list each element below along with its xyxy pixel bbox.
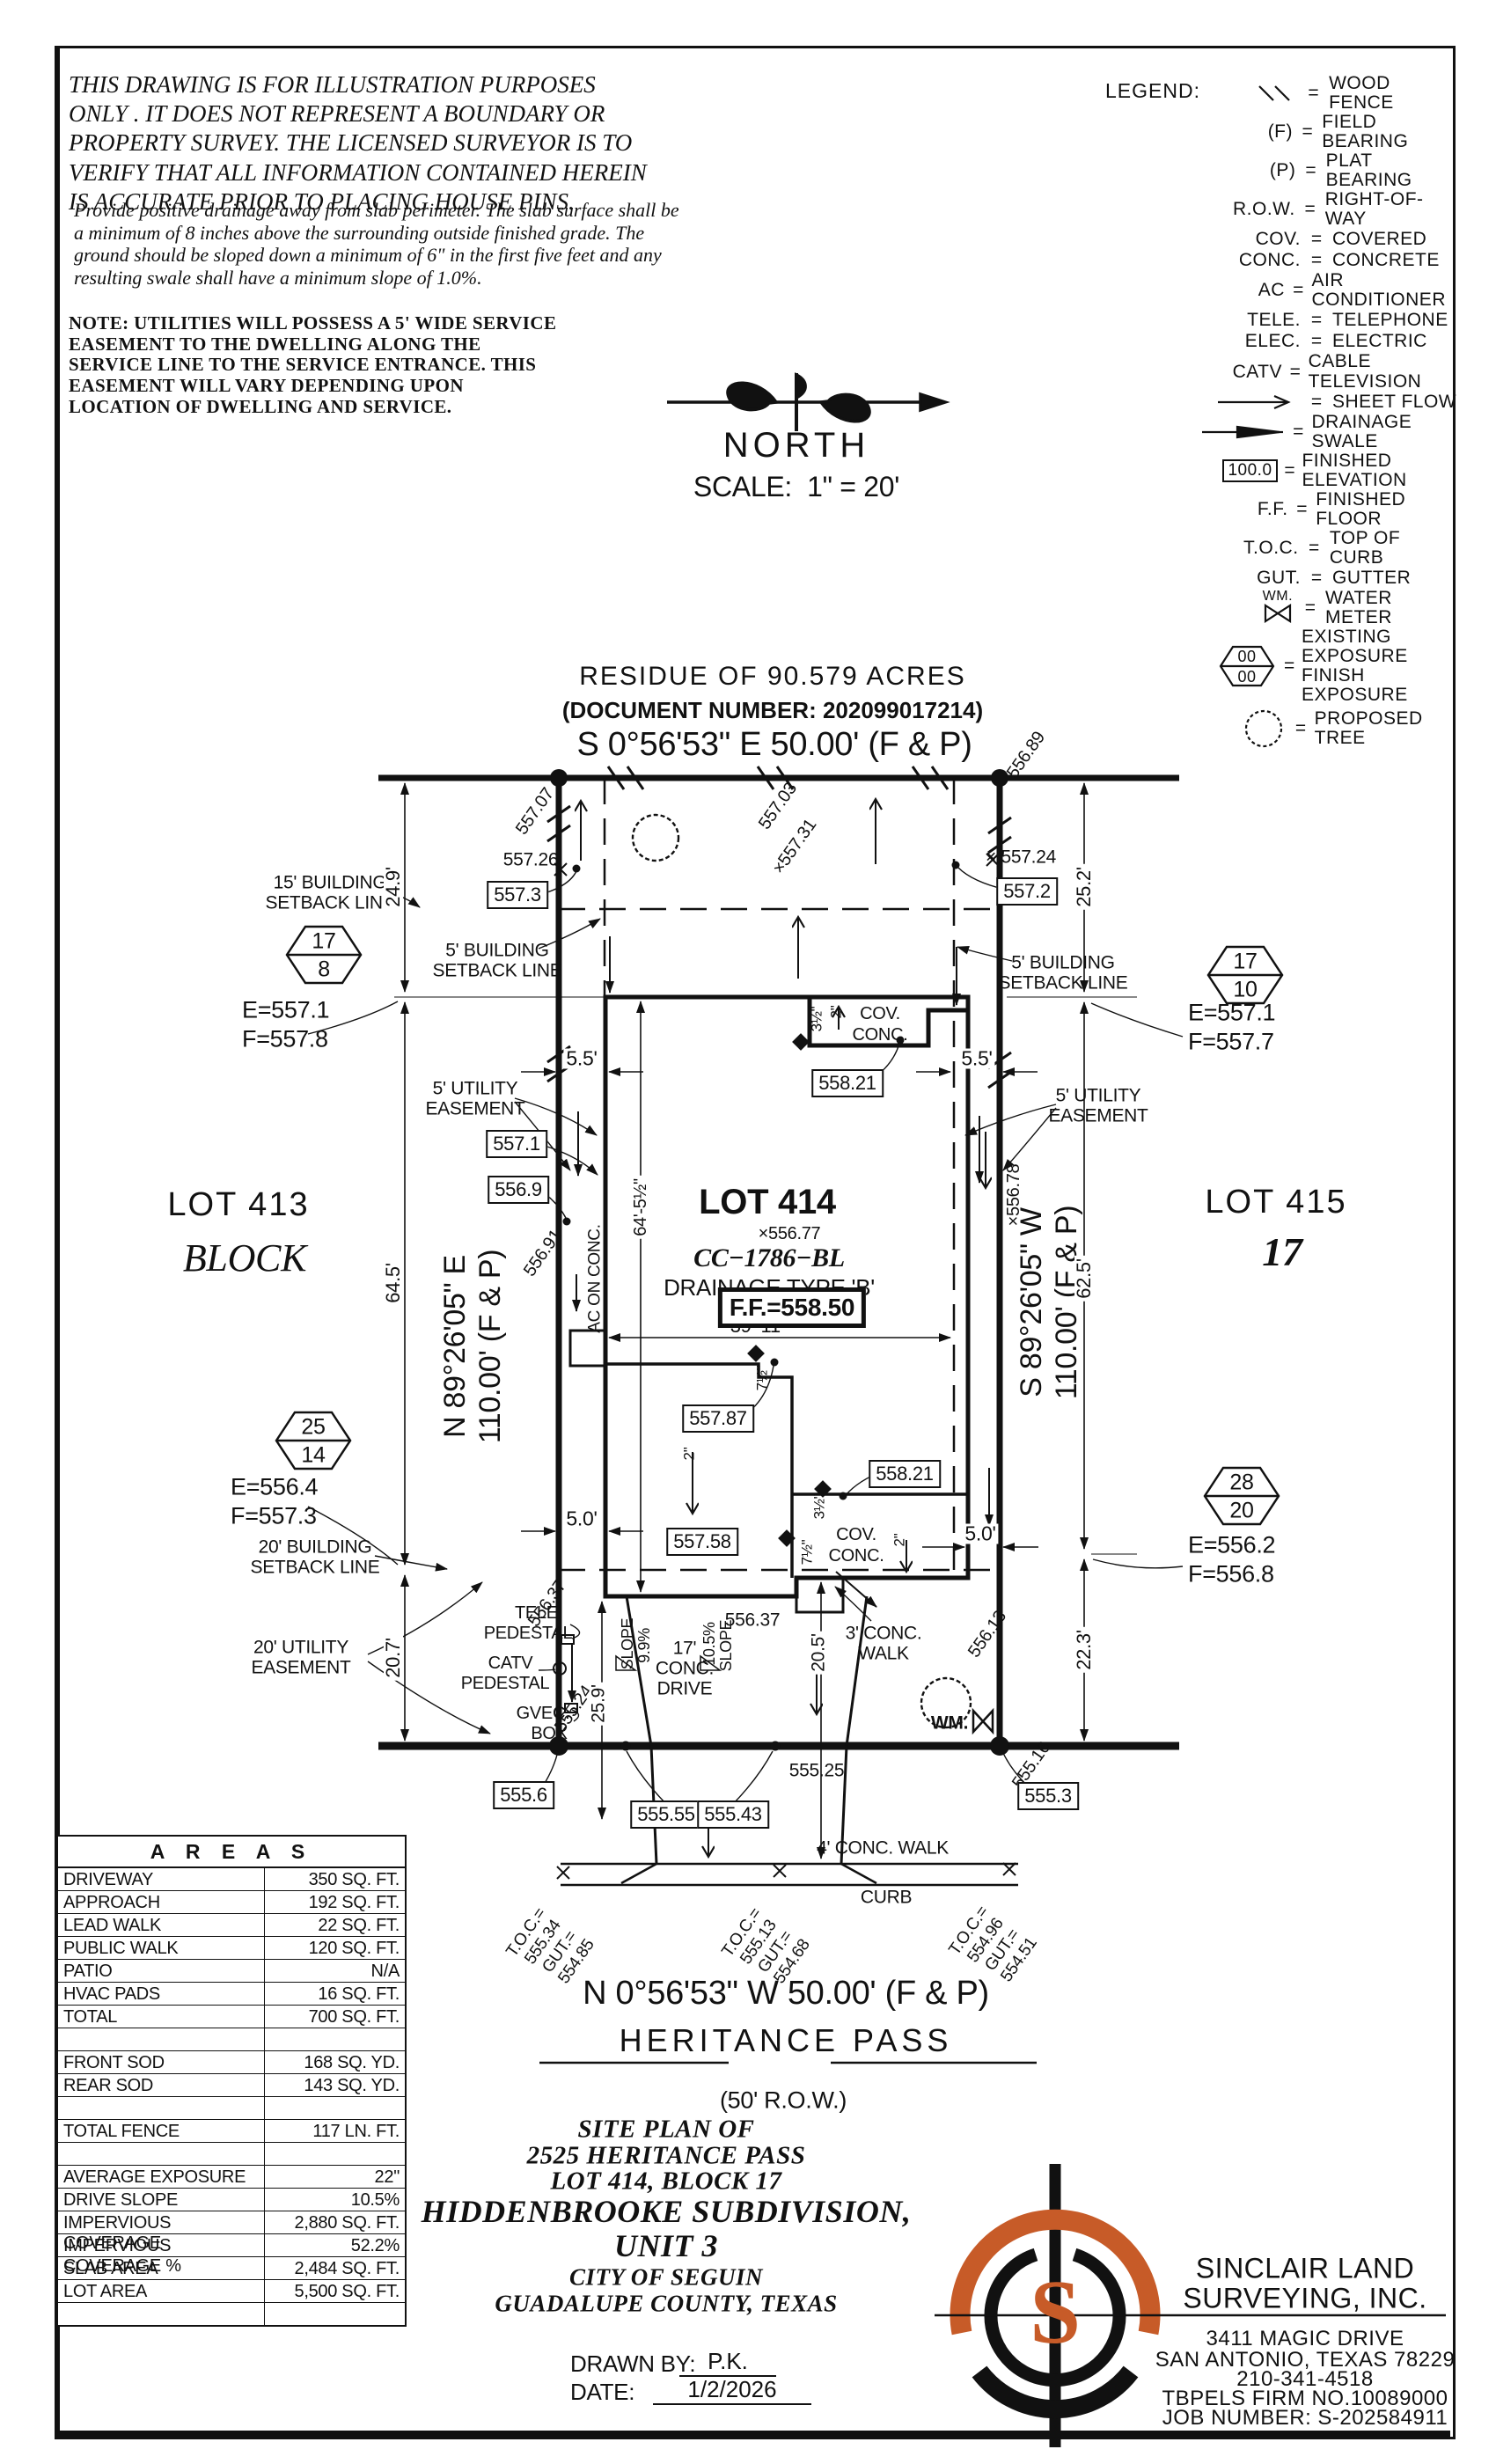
exposure-hexagon-icon: 0000 xyxy=(1197,641,1277,692)
plat-text: 7½" xyxy=(755,1366,770,1391)
plat-text: 4' CONC. WALK xyxy=(817,1839,949,1858)
plat-text: 25.9' xyxy=(590,1682,608,1725)
legend-equals: = xyxy=(1295,199,1325,220)
areas-row-label: SLAB AREA xyxy=(58,2257,265,2279)
plat-text: 10 xyxy=(1233,979,1257,1001)
titleblock-line: LOT 414, BLOCK 17 xyxy=(550,2167,781,2196)
wood-fence-icon xyxy=(1197,84,1298,103)
date-value: 1/2/2026 xyxy=(653,2376,811,2405)
areas-row: DRIVEWAY350 SQ. FT. xyxy=(58,1868,405,1891)
areas-row: DRIVE SLOPE10.5% xyxy=(58,2189,405,2211)
plat-text: CATV xyxy=(488,1654,533,1672)
areas-row-value: N/A xyxy=(265,1960,405,1982)
areas-row-label: HVAC PADS xyxy=(58,1983,265,2005)
legend-label: AIR CONDITIONER xyxy=(1311,271,1457,310)
legend-symbol-text: TELE. xyxy=(1197,310,1301,331)
plat-text: WALK xyxy=(858,1645,909,1663)
plat-text: F=557.8 xyxy=(242,1028,328,1052)
areas-row xyxy=(58,2143,405,2166)
plat-text: 20.5' xyxy=(810,1631,828,1674)
document-number: (DOCUMENT NUMBER: 202099017214) xyxy=(562,699,983,722)
areas-row: PATION/A xyxy=(58,1960,405,1983)
legend-row: F.F.=FINISHED FLOOR xyxy=(1197,490,1457,529)
plat-text: PEDESTAL xyxy=(484,1624,573,1642)
legend-label: COVERED xyxy=(1332,230,1426,249)
plat-text: 20 xyxy=(1229,1500,1253,1522)
plat-text: WM. xyxy=(931,1714,968,1733)
finished-elevation-box: 100.0 xyxy=(1222,459,1277,482)
plat-text: BLOCK xyxy=(183,1239,306,1278)
areas-row-value: 350 SQ. FT. xyxy=(265,1868,405,1890)
legend-equals: = xyxy=(1301,310,1332,331)
plat-text: E=556.2 xyxy=(1188,1534,1275,1558)
drainage-swale-icon xyxy=(1197,424,1285,440)
plat-text: 17 xyxy=(312,931,335,953)
legend-label: ELECTRIC xyxy=(1332,332,1427,351)
legend-equals: = xyxy=(1301,229,1332,250)
plat-text: CONC. xyxy=(829,1547,884,1565)
legend-symbol-text: (P) xyxy=(1197,160,1295,181)
plat-text: 64'-5½" xyxy=(632,1176,649,1239)
areas-row-value: 168 SQ. YD. xyxy=(265,2051,405,2073)
plat-text: 20' UTILITY xyxy=(253,1639,348,1657)
legend-row: AC=AIR CONDITIONER xyxy=(1197,271,1457,310)
areas-row-value: 16 SQ. FT. xyxy=(265,1983,405,2005)
lot-415-label: LOT 415 xyxy=(1205,1185,1346,1219)
boxed-elevation: 557.2 xyxy=(996,877,1058,906)
plat-text: 3½" xyxy=(812,1494,827,1520)
plat-text: F=557.7 xyxy=(1188,1030,1274,1054)
plat-text: AC ON CONC. xyxy=(587,1224,604,1332)
legend-label: FINISHED FLOOR xyxy=(1316,490,1457,529)
water-meter-icon: WM. xyxy=(1197,590,1295,627)
legend-equals: = xyxy=(1282,362,1309,383)
legend-equals: = xyxy=(1293,121,1322,143)
plat-text: E=557.1 xyxy=(1188,1001,1275,1025)
north-boundary-bearing: S 0°56'53" E 50.00' (F & P) xyxy=(576,728,972,761)
legend-equals: = xyxy=(1285,422,1312,443)
legend-row: R.O.W.=RIGHT-OF-WAY xyxy=(1197,190,1457,229)
areas-row xyxy=(58,2097,405,2120)
plat-text: E=556.4 xyxy=(231,1476,318,1500)
plat-text: 5.0' xyxy=(962,1524,998,1544)
plat-text: 555.25 xyxy=(789,1762,844,1780)
plat-text: 10.5% xyxy=(701,1622,717,1666)
wm-text: WM. xyxy=(1263,590,1293,604)
areas-row-label xyxy=(58,2097,265,2119)
plat-text: 5' UTILITY xyxy=(433,1080,518,1098)
plat-text: CURB xyxy=(861,1888,912,1907)
areas-row-label: DRIVE SLOPE xyxy=(58,2189,265,2211)
legend-symbol-text: COV. xyxy=(1197,229,1301,250)
plat-text: SLOPE xyxy=(620,1618,635,1670)
legend-row: WM.=WATER METER xyxy=(1197,589,1457,627)
boxed-elevation: 557.58 xyxy=(666,1528,738,1556)
areas-row xyxy=(58,2028,405,2051)
plat-text: 110.00' (F & P) xyxy=(475,1250,505,1444)
legend-label: DRAINAGE SWALE xyxy=(1312,413,1457,451)
residue-label: RESIDUE OF 90.579 ACRES xyxy=(579,664,966,690)
street-name: HERITANCE PASS xyxy=(620,2025,953,2057)
areas-row-value: 5,500 SQ. FT. xyxy=(265,2280,405,2302)
titleblock-line: HIDDENBROOKE SUBDIVISION, xyxy=(422,2193,912,2230)
plat-text: 3' CONC. xyxy=(846,1624,922,1643)
legend-symbol-text: F.F. xyxy=(1197,499,1288,520)
areas-row: LEAD WALK22 SQ. FT. xyxy=(58,1914,405,1937)
legend-equals: = xyxy=(1299,538,1330,559)
plan-code: CC−1786−BL xyxy=(693,1245,845,1272)
areas-row-label: LOT AREA xyxy=(58,2280,265,2302)
areas-row-value: 192 SQ. FT. xyxy=(265,1891,405,1913)
areas-row: LOT AREA5,500 SQ. FT. xyxy=(58,2280,405,2303)
plat-text: 3½" xyxy=(810,1007,825,1032)
plat-text: 7½" xyxy=(800,1540,815,1566)
proposed-tree-icon xyxy=(1197,706,1287,752)
drawn-by-label: DRAWN BY: xyxy=(570,2352,695,2375)
legend-symbol-text: CATV xyxy=(1197,362,1282,383)
legend-equals: = xyxy=(1287,718,1314,739)
plat-text: 9.9% xyxy=(636,1628,652,1663)
plat-text: F=556.8 xyxy=(1188,1563,1274,1587)
legend-symbol-text: (F) xyxy=(1197,121,1293,143)
titleblock-line: UNIT 3 xyxy=(614,2227,718,2264)
boxed-elevation: 555.6 xyxy=(493,1781,554,1809)
areas-row-label: PATIO xyxy=(58,1960,265,1982)
plat-text: DRIVE xyxy=(657,1680,713,1698)
legend-label: WOOD FENCE xyxy=(1329,74,1457,113)
wm-symbol: WM. xyxy=(1260,590,1295,627)
sheet-flow-icon xyxy=(1197,394,1301,410)
svg-text:00: 00 xyxy=(1238,648,1257,665)
plat-text: × 557.24 xyxy=(986,848,1056,867)
proposed-tree-icon xyxy=(633,815,678,861)
plat-text: 17' xyxy=(673,1639,696,1658)
plat-text: 14 xyxy=(301,1445,325,1467)
plat-text: 5.5' xyxy=(563,1049,599,1069)
areas-row-value: 22 SQ. FT. xyxy=(265,1914,405,1936)
east-boundary-bearing: S 89°26'05" W xyxy=(1016,1207,1046,1397)
site-plan-sheet: THIS DRAWING IS FOR ILLUSTRATION PURPOSE… xyxy=(0,0,1496,2464)
legend-symbol-text: T.O.C. xyxy=(1197,538,1299,559)
plat-text: 2" xyxy=(892,1534,907,1547)
legend-row: (F)=FIELD BEARING xyxy=(1197,113,1457,151)
plat-text: SLOPE xyxy=(718,1620,734,1672)
areas-row-value: 700 SQ. FT. xyxy=(265,2006,405,2028)
plat-text: 17 xyxy=(1233,951,1257,973)
plat-text: EASEMENT xyxy=(425,1100,524,1118)
areas-title: A R E A S xyxy=(58,1837,405,1868)
areas-row-label: APPROACH xyxy=(58,1891,265,1913)
date-label: DATE: xyxy=(570,2380,634,2403)
areas-row-value: 52.2% xyxy=(265,2234,405,2256)
areas-row: SLAB AREA2,484 SQ. FT. xyxy=(58,2257,405,2280)
row-width: (50' R.O.W.) xyxy=(720,2089,847,2113)
scale-label: SCALE: 1" = 20' xyxy=(693,473,899,501)
plat-text: 28 xyxy=(1229,1472,1253,1494)
legend-symbol-text: CONC. xyxy=(1197,250,1301,271)
areas-row: FRONT SOD168 SQ. YD. xyxy=(58,2051,405,2074)
areas-row-label: FRONT SOD xyxy=(58,2051,265,2073)
ac-pad xyxy=(570,1331,605,1366)
plat-text: 62.5' xyxy=(1074,1256,1094,1302)
legend-equals: = xyxy=(1301,568,1332,589)
titleblock-line: SITE PLAN OF xyxy=(578,2116,755,2145)
plat-text: 2" xyxy=(682,1448,697,1461)
legend-label: FINISHED ELEVATION xyxy=(1302,451,1457,490)
legend-row: CATV=CABLE TELEVISION xyxy=(1197,352,1457,391)
plat-text: 5' BUILDING xyxy=(1011,954,1114,972)
plat-text: 20' BUILDING xyxy=(259,1538,372,1557)
plat-text: F=557.3 xyxy=(231,1505,317,1529)
areas-row-value: 143 SQ. YD. xyxy=(265,2074,405,2096)
legend-row: =SHEET FLOW xyxy=(1197,392,1457,413)
firm-job: JOB NUMBER: S-202584911 xyxy=(1162,2406,1448,2431)
legend-label: GUTTER xyxy=(1332,568,1411,588)
legend-label: FIELD BEARING xyxy=(1322,113,1457,151)
north-arrow-icon xyxy=(667,373,945,431)
boxed-elevation: 555.43 xyxy=(697,1800,769,1829)
legend-title: LEGEND: xyxy=(1105,79,1200,103)
plat-text: ×556.77 xyxy=(759,1225,821,1243)
plat-text: 557.26 xyxy=(503,851,558,869)
titleblock-line: GUADALUPE COUNTY, TEXAS xyxy=(495,2291,837,2318)
plat-text: SETBACK LINE xyxy=(251,1558,380,1577)
areas-row-value xyxy=(265,2143,405,2165)
plat-text: PEDESTAL xyxy=(461,1675,550,1692)
boxed-elevation: 555.3 xyxy=(1017,1782,1079,1810)
plat-text: 5' UTILITY xyxy=(1056,1087,1141,1105)
areas-row-value: 117 LN. FT. xyxy=(265,2120,405,2142)
boxed-elevation: 557.87 xyxy=(682,1404,754,1433)
areas-row-value xyxy=(265,2097,405,2119)
firm-name2: SURVEYING, INC. xyxy=(1183,2283,1426,2315)
areas-row: PUBLIC WALK120 SQ. FT. xyxy=(58,1937,405,1960)
legend-label: TELEPHONE xyxy=(1332,311,1448,330)
boxed-elevation: 555.55 xyxy=(630,1800,702,1829)
legend-label: SHEET FLOW xyxy=(1332,392,1456,412)
legend-row: ELEC.=ELECTRIC xyxy=(1197,331,1457,352)
legend-label: CONCRETE xyxy=(1332,251,1440,270)
plat-text: SETBACK LINE xyxy=(999,974,1128,993)
areas-row-label: REAR SOD xyxy=(58,2074,265,2096)
plat-text: 5.5' xyxy=(958,1049,994,1069)
plat-text: SETBACK LINE xyxy=(433,962,562,980)
plat-text: EASEMENT xyxy=(251,1659,350,1677)
legend-label: CABLE TELEVISION xyxy=(1309,352,1457,391)
areas-row: TOTAL700 SQ. FT. xyxy=(58,2006,405,2028)
legend-equals: = xyxy=(1301,331,1332,352)
logo-letter: S xyxy=(1030,2267,1081,2358)
plat-text: 20.7' xyxy=(384,1635,403,1681)
legend-equals: = xyxy=(1301,250,1332,271)
areas-row-value xyxy=(265,2303,405,2325)
areas-row: HVAC PADS16 SQ. FT. xyxy=(58,1983,405,2006)
legend-equals: = xyxy=(1288,499,1316,520)
areas-row: APPROACH192 SQ. FT. xyxy=(58,1891,405,1914)
legend-symbol-text: AC xyxy=(1197,280,1285,301)
legend-equals: = xyxy=(1298,83,1329,104)
areas-row-label: TOTAL xyxy=(58,2006,265,2028)
legend-row: 0000=EXISTING EXPOSUREFINISH EXPOSURE xyxy=(1197,627,1457,705)
areas-row-value: 120 SQ. FT. xyxy=(265,1937,405,1959)
plat-text: EASEMENT xyxy=(1048,1107,1148,1126)
legend-row: 100.0=FINISHED ELEVATION xyxy=(1197,451,1457,490)
legend-row: (P)=PLAT BEARING xyxy=(1197,151,1457,190)
areas-row-value: 10.5% xyxy=(265,2189,405,2211)
legend-label: WATER METER xyxy=(1325,589,1457,627)
plat-text: 25 xyxy=(301,1417,325,1439)
areas-row: AVERAGE EXPOSURE22" xyxy=(58,2166,405,2189)
setback-lines xyxy=(559,778,1000,1570)
plat-text: E=557.1 xyxy=(242,999,329,1023)
areas-row-label xyxy=(58,2028,265,2050)
areas-row-label: IMPERVIOUS COVERAGE xyxy=(58,2211,265,2233)
areas-row-value: 2,484 SQ. FT. xyxy=(265,2257,405,2279)
plat-text: CONC. xyxy=(853,1026,908,1044)
plat-text: 5.0' xyxy=(563,1509,599,1529)
titleblock-line: CITY OF SEGUIN xyxy=(569,2264,763,2292)
plat-text: SETBACK LINE xyxy=(266,894,395,913)
legend-equals: = xyxy=(1278,460,1302,481)
legend-row: TELE.=TELEPHONE xyxy=(1197,310,1457,331)
legend-label: TOP OF CURB xyxy=(1330,529,1457,568)
legend-row: T.O.C.=TOP OF CURB xyxy=(1197,529,1457,568)
plat-text: 5' BUILDING xyxy=(445,942,548,960)
lot-413-label: LOT 413 xyxy=(167,1188,309,1221)
legend-label: PROPOSED TREE xyxy=(1315,709,1457,748)
legend-row: =DRAINAGE SWALE xyxy=(1197,413,1457,451)
areas-row: IMPERVIOUS COVERAGE %52.2% xyxy=(58,2234,405,2257)
plat-text: 17 xyxy=(1262,1232,1302,1272)
legend-row: CONC.=CONCRETE xyxy=(1197,250,1457,271)
boxed-elevation: 557.1 xyxy=(486,1130,547,1158)
plat-text: COV. xyxy=(860,1005,900,1023)
legend-row: =WOOD FENCE xyxy=(1197,74,1457,113)
legend-row: GUT.=GUTTER xyxy=(1197,568,1457,589)
svg-text:00: 00 xyxy=(1238,668,1257,686)
plat-text: 64.5' xyxy=(384,1260,403,1306)
areas-row xyxy=(58,2303,405,2325)
west-boundary-bearing: N 89°26'05" E xyxy=(440,1255,470,1438)
legend-row: COV.=COVERED xyxy=(1197,229,1457,250)
areas-row-value: 2,880 SQ. FT. xyxy=(265,2211,405,2233)
areas-row-label: TOTAL FENCE xyxy=(58,2120,265,2142)
areas-row-value xyxy=(265,2028,405,2050)
legend-symbol-text: GUT. xyxy=(1197,568,1301,589)
areas-row-label: DRIVEWAY xyxy=(58,1868,265,1890)
legend-equals: = xyxy=(1285,280,1312,301)
areas-row: IMPERVIOUS COVERAGE2,880 SQ. FT. xyxy=(58,2211,405,2234)
legend-symbol-box: 100.0 xyxy=(1197,459,1278,482)
legend-equals: = xyxy=(1277,656,1302,677)
plat-text: 2" xyxy=(829,1006,844,1019)
plat-text: 15' BUILDING xyxy=(274,874,387,892)
legend-equals: = xyxy=(1301,392,1332,413)
areas-row-label: AVERAGE EXPOSURE xyxy=(58,2166,265,2188)
boxed-elevation: 557.3 xyxy=(487,881,548,909)
areas-table: A R E A S DRIVEWAY350 SQ. FT.APPROACH192… xyxy=(56,1835,407,2327)
legend-label: EXISTING EXPOSUREFINISH EXPOSURE xyxy=(1302,627,1457,705)
finished-floor-elevation: F.F.=558.50 xyxy=(718,1287,866,1328)
boxed-elevation: 558.21 xyxy=(869,1460,941,1488)
boxed-elevation: 558.21 xyxy=(811,1069,884,1097)
areas-row-label xyxy=(58,2303,265,2325)
legend-label: RIGHT-OF-WAY xyxy=(1325,190,1457,229)
legend-equals: = xyxy=(1295,160,1325,181)
areas-row-label: LEAD WALK xyxy=(58,1914,265,1936)
areas-row-label: PUBLIC WALK xyxy=(58,1937,265,1959)
plat-text: COV. xyxy=(836,1526,876,1544)
firm-name1: SINCLAIR LAND xyxy=(1196,2253,1414,2285)
plat-text: 25.2' xyxy=(1074,864,1094,910)
plat-text: ×556.78 xyxy=(1005,1164,1023,1227)
plat-text: 22.3' xyxy=(1074,1627,1094,1673)
boxed-elevation: 556.9 xyxy=(488,1176,549,1204)
areas-row: REAR SOD143 SQ. YD. xyxy=(58,2074,405,2097)
areas-row-label xyxy=(58,2143,265,2165)
plat-text: 8 xyxy=(318,959,330,981)
water-meter-icon xyxy=(973,1711,993,1732)
plat-text: 110.00' (F & P) xyxy=(1052,1206,1082,1400)
legend-row: =PROPOSED TREE xyxy=(1197,705,1457,752)
legend-equals: = xyxy=(1295,598,1325,619)
areas-row: TOTAL FENCE117 LN. FT. xyxy=(58,2120,405,2143)
legend-symbol-text: R.O.W. xyxy=(1197,199,1295,220)
areas-row-label: IMPERVIOUS COVERAGE % xyxy=(58,2234,265,2256)
areas-row-value: 22" xyxy=(265,2166,405,2188)
legend-symbol-text: ELEC. xyxy=(1197,331,1301,352)
legend-label: PLAT BEARING xyxy=(1326,151,1457,190)
north-label: NORTH xyxy=(723,428,869,463)
subject-lot-label: LOT 414 xyxy=(699,1184,836,1220)
drawn-by-value: P.K. xyxy=(679,2348,776,2377)
plat-text: 24.9' xyxy=(384,864,403,910)
